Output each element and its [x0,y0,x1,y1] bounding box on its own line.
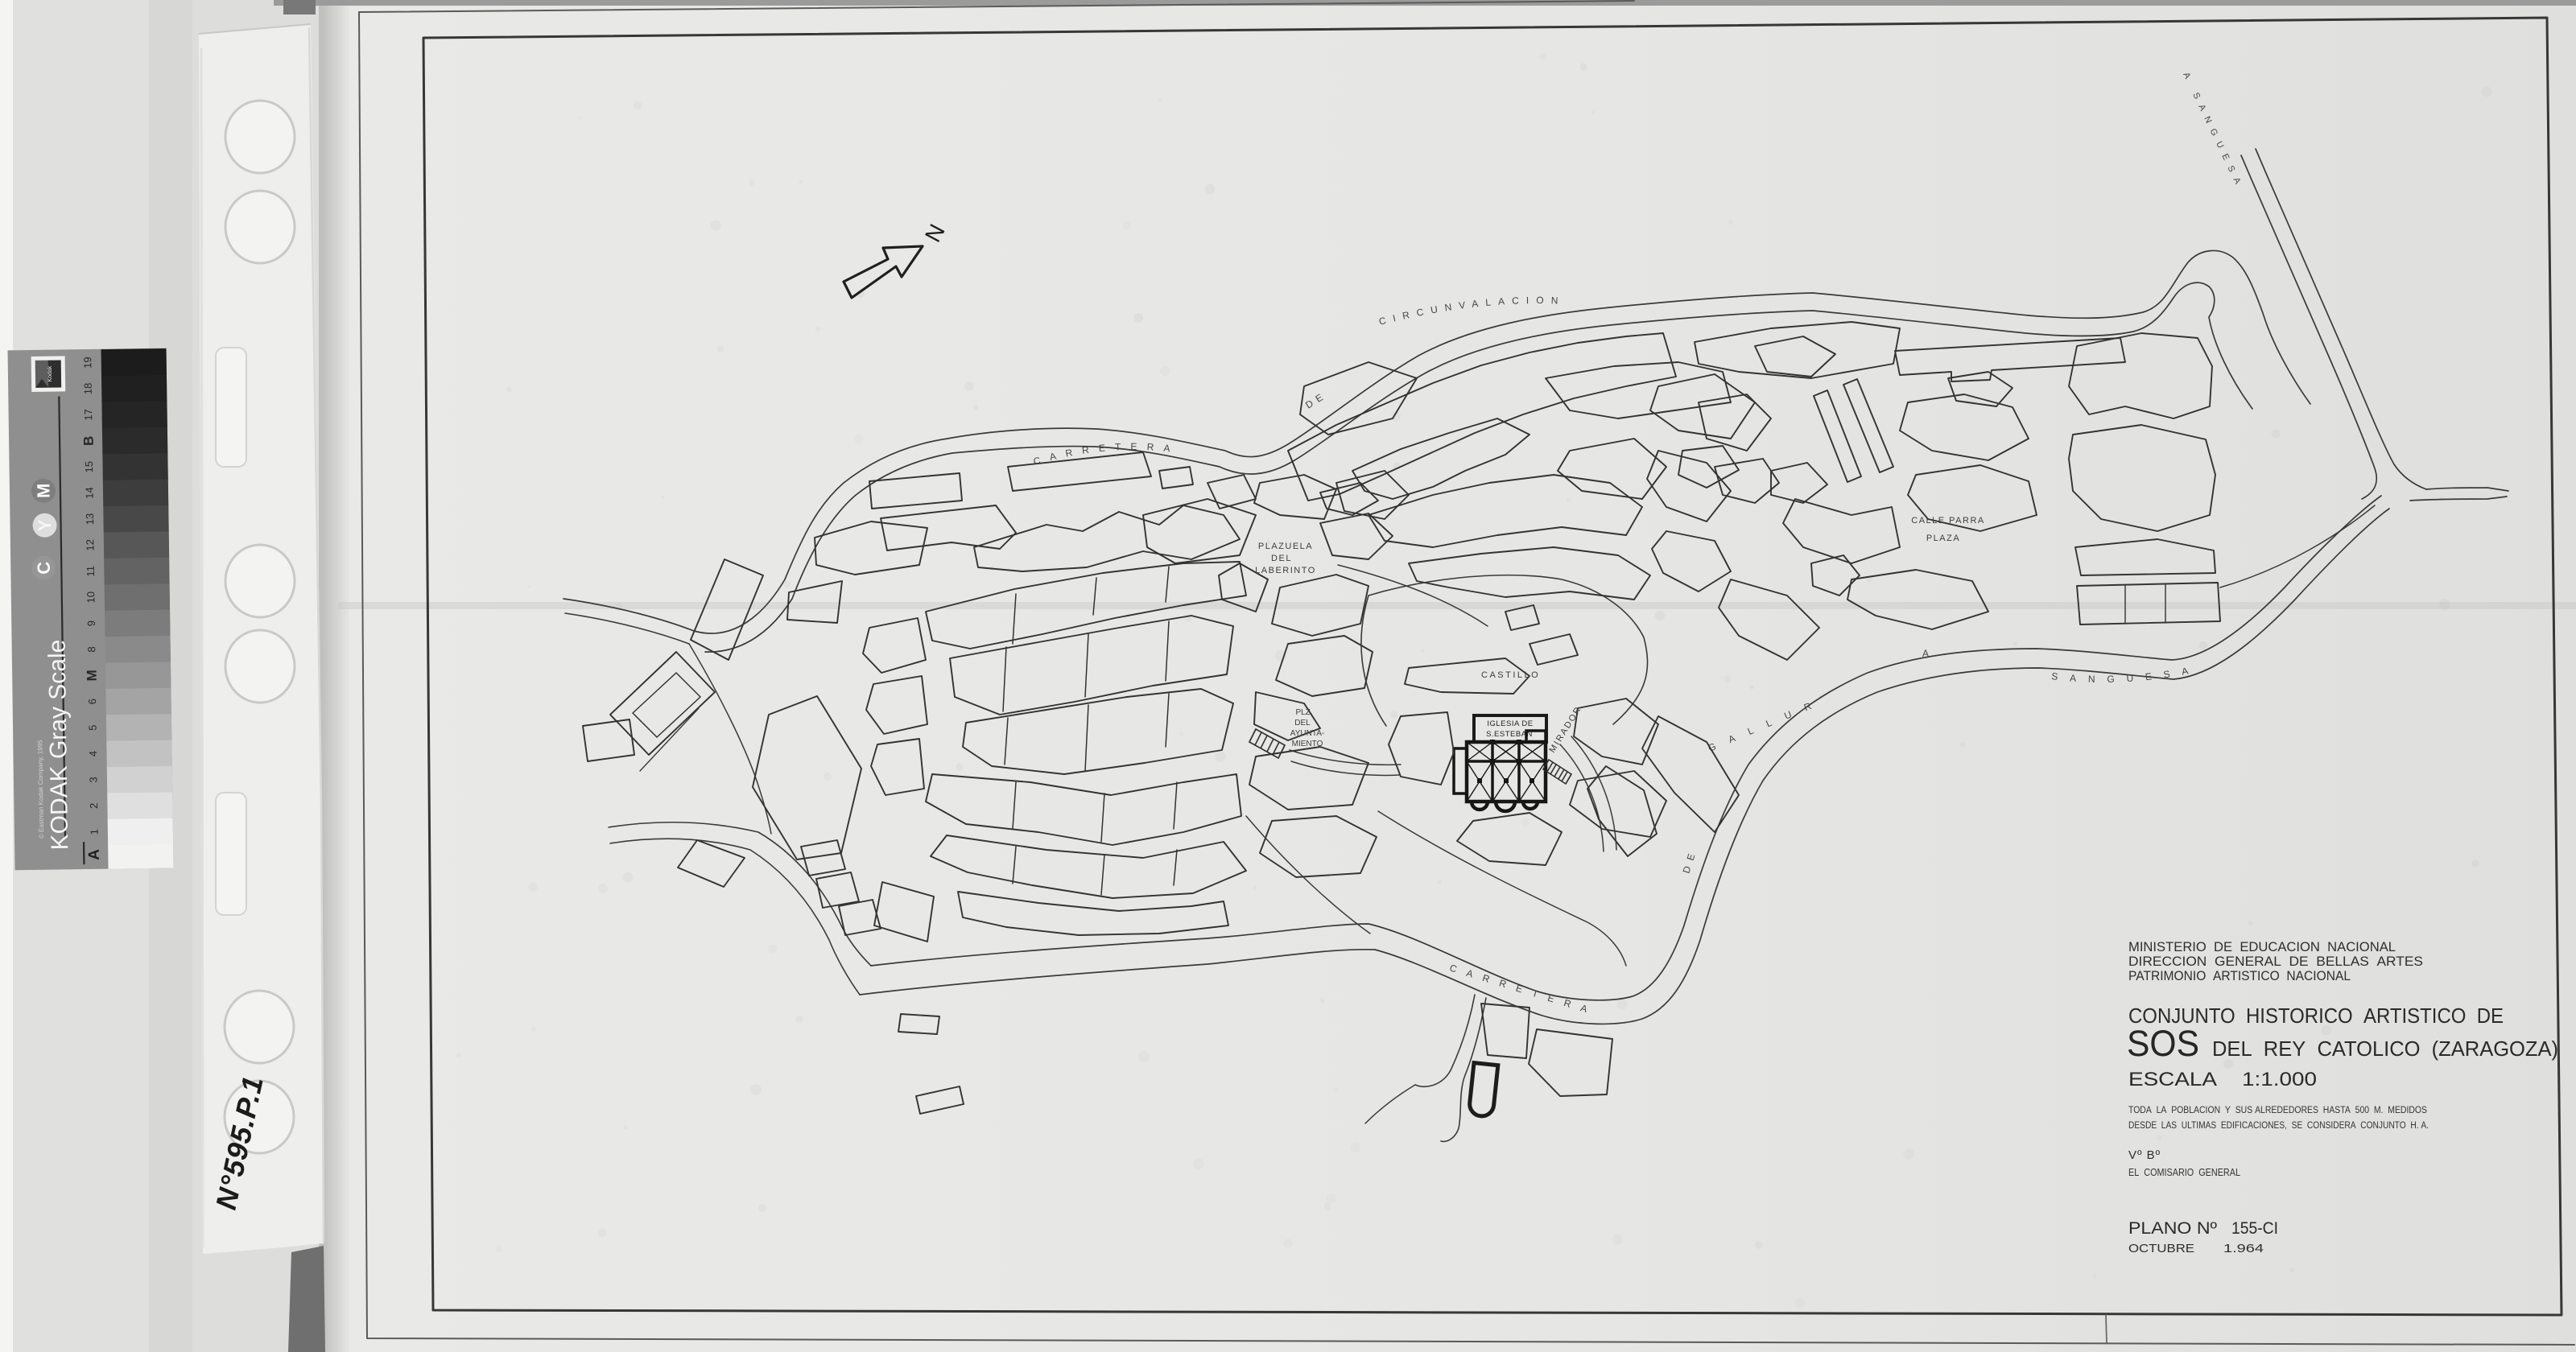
svg-text:6: 6 [86,699,98,704]
svg-text:C: C [34,562,54,575]
svg-text:M: M [85,670,100,681]
svg-text:13: 13 [84,513,96,526]
svg-text:19: 19 [81,357,93,369]
svg-text:ESCALA 1:1.000: ESCALA 1:1.000 [2128,1069,2317,1090]
svg-text:MINISTERIO DE EDUCACION NAC: MINISTERIO DE EDUCACION NACIONAL [2128,939,2396,954]
svg-text:LABERINTO: LABERINTO [1255,566,1316,575]
svg-text:PLAZUELA: PLAZUELA [1258,542,1313,551]
svg-text:© Eastman Kodak Company, 1995: © Eastman Kodak Company, 1995 [36,740,45,839]
svg-text:TODA LA POBLACION Y SUS AL: TODA LA POBLACION Y SUS ALREDEDORES HAST… [2128,1106,2427,1115]
svg-text:PLZ.: PLZ. [1295,708,1312,717]
svg-text:KODAK Gray Scale: KODAK Gray Scale [44,639,74,850]
svg-text:Y: Y [35,519,55,531]
svg-text:OCTUBRE: OCTUBRE [2128,1242,2194,1255]
svg-text:PATRIMONIO ARTISTICO NACIONA: PATRIMONIO ARTISTICO NACIONAL [2128,968,2351,983]
svg-text:155-CI: 155-CI [2231,1219,2278,1238]
svg-text:CALLE PARRA: CALLE PARRA [1911,516,1985,526]
svg-text:DEL: DEL [1294,719,1311,728]
svg-text:SOS: SOS [2127,1023,2199,1064]
svg-text:18: 18 [82,383,94,395]
svg-text:A: A [1922,648,1929,659]
svg-text:14: 14 [83,487,95,499]
svg-text:Kodak: Kodak [47,365,53,381]
svg-text:DIRECCION GENERAL DE BELLAS: DIRECCION GENERAL DE BELLAS ARTES [2128,954,2423,969]
svg-text:11: 11 [85,566,97,577]
svg-text:CASTILLO: CASTILLO [1481,670,1540,680]
svg-text:B: B [81,436,97,447]
svg-text:PLANO Nº: PLANO Nº [2128,1219,2217,1238]
svg-text:EL COMISARIO GENERAL: EL COMISARIO GENERAL [2128,1167,2240,1178]
svg-text:3: 3 [87,777,99,782]
svg-text:IGLESIA DE: IGLESIA DE [1487,719,1533,728]
svg-text:AYUNTA-: AYUNTA- [1290,729,1324,738]
svg-text:A: A [86,849,103,860]
svg-text:15: 15 [83,461,95,473]
svg-text:9: 9 [85,620,97,626]
svg-text:1: 1 [88,829,100,835]
svg-text:17: 17 [82,409,94,421]
svg-text:DEL: DEL [1271,554,1292,563]
svg-text:12: 12 [84,539,96,551]
svg-text:2: 2 [88,803,100,809]
svg-text:10: 10 [85,591,97,604]
svg-text:1.964: 1.964 [2223,1242,2264,1255]
svg-text:DEL REY CATOLICO (ZARAGOZA): DEL REY CATOLICO (ZARAGOZA) [2212,1037,2558,1061]
svg-text:DESDE LAS ULTIMAS EDIFICACI: DESDE LAS ULTIMAS EDIFICACIONES, SE CONS… [2128,1121,2429,1131]
svg-text:5: 5 [87,724,99,730]
svg-text:4: 4 [87,751,99,756]
svg-text:M: M [33,483,53,498]
svg-text:Vº Bº: Vº Bº [2128,1148,2161,1162]
svg-text:8: 8 [85,646,97,652]
svg-text:PLAZA: PLAZA [1926,534,1960,543]
